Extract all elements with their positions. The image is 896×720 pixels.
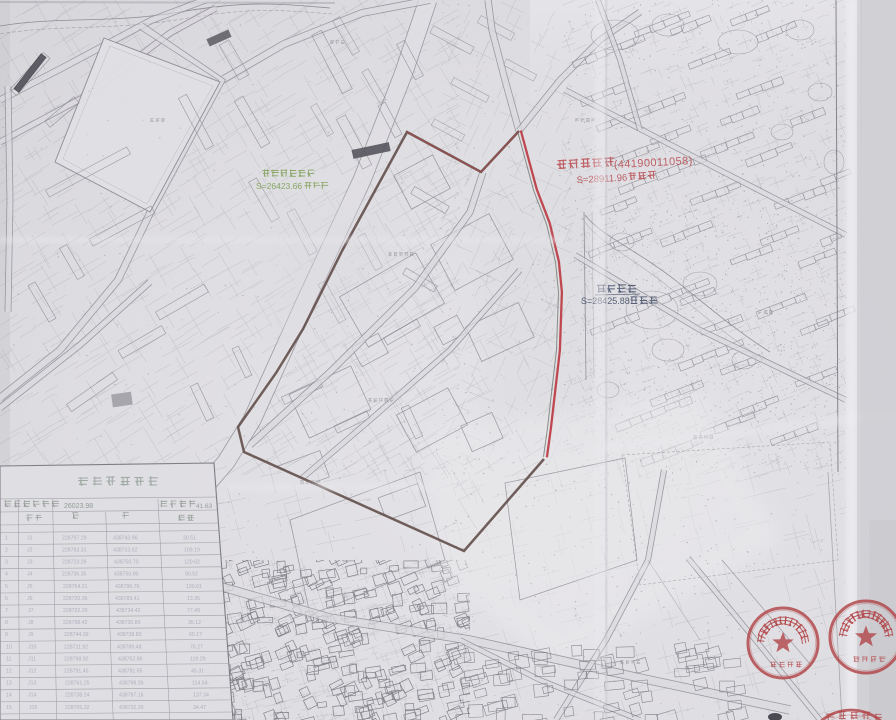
svg-text:438789.48: 438789.48 (117, 644, 142, 650)
svg-text:228797.29: 228797.29 (62, 535, 87, 541)
svg-text:228791.45: 228791.45 (64, 669, 89, 675)
svg-text:2: 2 (5, 548, 8, 554)
svg-text:90.52: 90.52 (185, 572, 198, 578)
svg-text:13: 13 (6, 681, 12, 687)
svg-text:J4: J4 (27, 572, 33, 578)
svg-text:76.27: 76.27 (190, 644, 203, 650)
svg-text:6: 6 (5, 596, 8, 602)
svg-text:7: 7 (5, 608, 8, 614)
svg-text:65.17: 65.17 (189, 632, 202, 638)
svg-text:11: 11 (6, 656, 11, 662)
svg-text:228765.32: 228765.32 (65, 705, 90, 711)
svg-text:438750.90: 438750.90 (114, 572, 139, 578)
svg-text:114.54: 114.54 (192, 681, 208, 687)
svg-text:77.49: 77.49 (187, 608, 200, 614)
svg-text:34.47: 34.47 (193, 705, 206, 711)
svg-text:438738.83: 438738.83 (117, 632, 142, 638)
svg-text:1: 1 (5, 535, 8, 541)
svg-text:12: 12 (6, 669, 12, 675)
svg-text:109.19: 109.19 (184, 548, 200, 554)
svg-text:228761.25: 228761.25 (65, 681, 90, 687)
svg-text:J11: J11 (28, 656, 36, 662)
svg-text:J13: J13 (28, 681, 36, 687)
svg-text:41.63: 41.63 (196, 503, 213, 510)
svg-text:438798.26: 438798.26 (119, 681, 144, 687)
svg-text:8: 8 (5, 620, 8, 626)
svg-text:J15: J15 (29, 705, 37, 711)
svg-text:J1: J1 (27, 535, 33, 541)
svg-text:228764.21: 228764.21 (63, 584, 88, 590)
svg-text:45.31: 45.31 (191, 669, 204, 675)
svg-text:438752.86: 438752.86 (118, 656, 143, 662)
svg-text:35.12: 35.12 (188, 620, 201, 626)
svg-text:438790.76: 438790.76 (115, 584, 140, 590)
svg-text:3: 3 (5, 560, 8, 566)
svg-text:438730.89: 438730.89 (116, 620, 141, 626)
svg-text:J7: J7 (28, 608, 34, 614)
svg-text:438787.16: 438787.16 (119, 693, 144, 699)
svg-text:228722.20: 228722.20 (63, 608, 88, 614)
svg-text:J9: J9 (28, 632, 34, 638)
svg-text:J14: J14 (28, 693, 36, 699)
svg-text:S=26423.66: S=26423.66 (256, 181, 302, 191)
svg-text:228738.24: 228738.24 (65, 693, 90, 699)
svg-text:228744.39: 228744.39 (64, 632, 89, 638)
svg-text:438713.62: 438713.62 (113, 548, 138, 554)
svg-text:228736.35: 228736.35 (62, 572, 87, 578)
svg-text:119.29: 119.29 (190, 656, 206, 662)
svg-text:130.61: 130.61 (186, 584, 202, 590)
svg-text:438781.65: 438781.65 (118, 669, 143, 675)
svg-text:14: 14 (6, 693, 12, 699)
svg-text:120.62: 120.62 (184, 560, 200, 566)
svg-text:30.51: 30.51 (183, 535, 196, 541)
svg-text:4: 4 (5, 572, 8, 578)
svg-text:438732.20: 438732.20 (119, 705, 144, 711)
svg-text:J5: J5 (27, 584, 33, 590)
svg-text:438750.70: 438750.70 (114, 560, 139, 566)
svg-text:137.34: 137.34 (193, 693, 209, 699)
svg-text:438743.96: 438743.96 (113, 535, 138, 541)
svg-text:438783.41: 438783.41 (115, 596, 140, 602)
svg-text:438734.42: 438734.42 (116, 608, 141, 614)
svg-text:J6: J6 (27, 596, 33, 602)
svg-text:15: 15 (6, 705, 12, 711)
svg-text:228711.92: 228711.92 (64, 644, 88, 650)
svg-text:10: 10 (6, 644, 12, 650)
svg-text:J12: J12 (28, 669, 36, 675)
svg-text:228783.31: 228783.31 (62, 548, 87, 554)
svg-text:26023.98: 26023.98 (64, 503, 93, 510)
svg-text:J10: J10 (28, 644, 36, 650)
svg-text:5: 5 (5, 584, 8, 590)
svg-text:9: 9 (5, 632, 8, 638)
svg-text:228723.26: 228723.26 (62, 560, 87, 566)
svg-text:J8: J8 (28, 620, 34, 626)
svg-text:228798.92: 228798.92 (64, 656, 89, 662)
svg-text:228720.36: 228720.36 (63, 596, 88, 602)
svg-text:J2: J2 (27, 548, 33, 554)
svg-text:J3: J3 (27, 560, 33, 566)
svg-text:13.35: 13.35 (187, 596, 200, 602)
svg-text:228798.42: 228798.42 (63, 620, 88, 626)
